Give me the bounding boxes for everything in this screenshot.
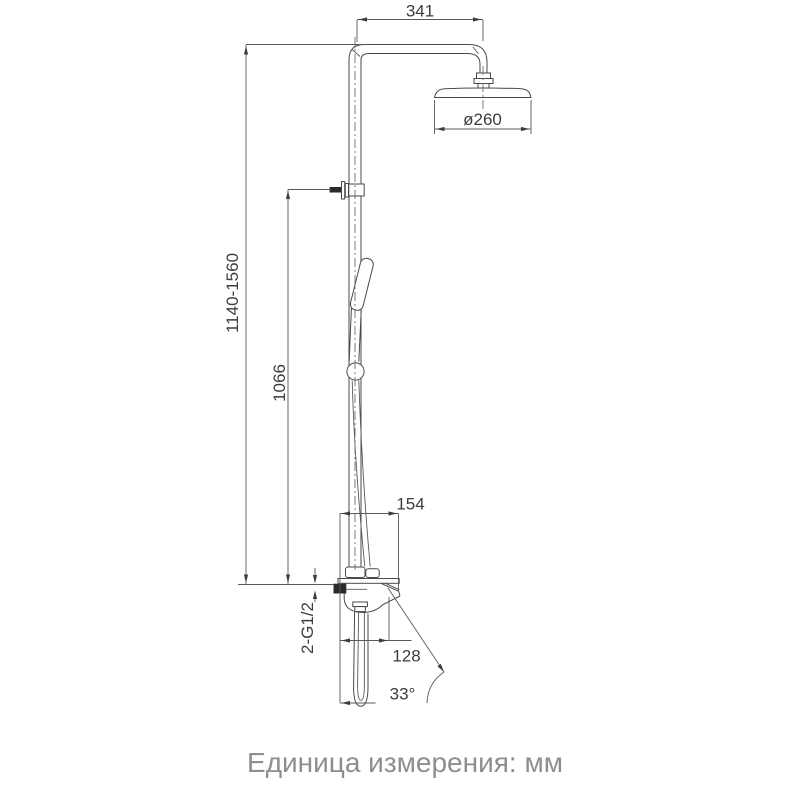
dim-label-spout-reach: 128 — [392, 647, 420, 666]
dim-label-arm-width: 341 — [406, 2, 434, 21]
dimension-inlet-thread: 2-G1/2 — [298, 568, 317, 654]
dim-label-body-width: 154 — [396, 495, 424, 514]
mixer-body — [334, 567, 400, 613]
hose-connection-nut — [355, 607, 366, 612]
dim-label-total-height: 1140-1560 — [223, 253, 242, 333]
overhead-shower — [435, 66, 531, 109]
shower-system-technical-drawing: 341 ø260 1140-1560 1066 154 — [0, 0, 800, 800]
slider-ball — [347, 363, 364, 380]
connector-nut — [477, 73, 491, 79]
mixer-wall-plate — [338, 579, 399, 584]
wall-bracket — [330, 182, 364, 200]
dimension-body-width: 154 — [340, 495, 425, 703]
shower-system-spec-sheet: 341 ø260 1140-1560 1066 154 — [0, 0, 800, 800]
dim-label-riser-height: 1066 — [270, 364, 289, 402]
hand-shower-head — [349, 257, 374, 312]
connector-nut — [478, 84, 489, 89]
unit-caption: Единица измерения: мм — [247, 747, 563, 778]
connector-nut — [474, 79, 493, 84]
hose-loop — [354, 612, 368, 707]
shower-arm — [364, 45, 487, 74]
hose-escutcheon — [366, 569, 379, 578]
dimension-total-height: 1140-1560 — [223, 45, 363, 585]
dimension-arm-width: 341 — [357, 2, 483, 43]
hose-connection-nut — [353, 602, 368, 607]
dim-label-spout-angle: 33° — [390, 685, 416, 704]
dim-label-head-diameter: ø260 — [463, 110, 502, 129]
shower-column-figure — [330, 37, 531, 706]
dimension-riser-height: 1066 — [270, 190, 331, 585]
dim-label-inlet-thread: 2-G1/2 — [298, 602, 317, 654]
